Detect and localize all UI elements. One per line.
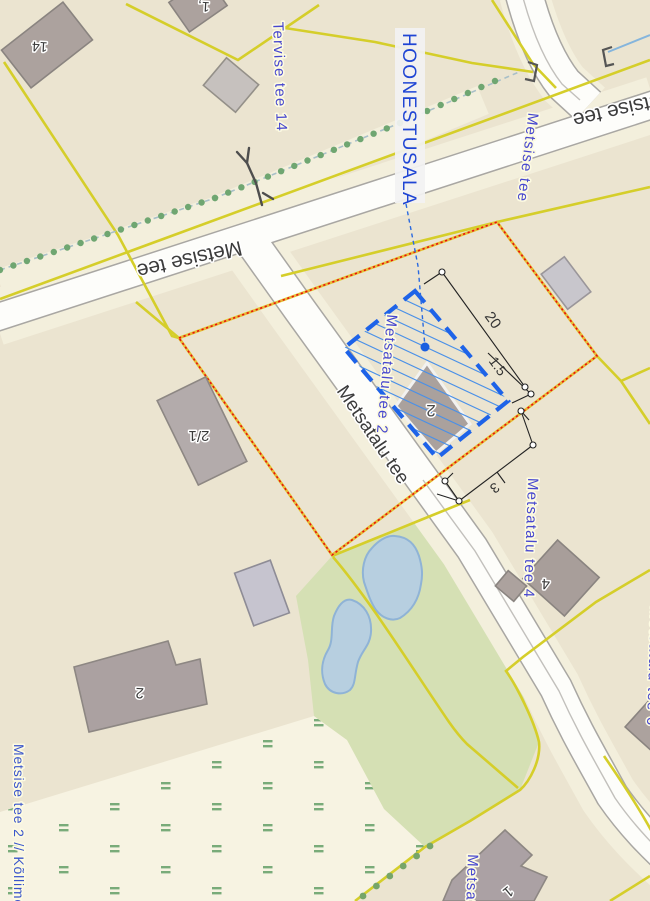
svg-text:2: 2: [135, 684, 144, 701]
svg-text:Metsise tee 2 // Kõllimetsa: Metsise tee 2 // Kõllimetsa: [11, 744, 27, 901]
svg-text:2: 2: [426, 401, 435, 420]
svg-text:2/1: 2/1: [189, 427, 210, 444]
svg-text:1,: 1,: [197, 0, 210, 15]
svg-text:14: 14: [31, 39, 48, 56]
svg-text:HOONESTUSALA: HOONESTUSALA: [398, 33, 419, 206]
svg-text:4: 4: [541, 575, 550, 592]
